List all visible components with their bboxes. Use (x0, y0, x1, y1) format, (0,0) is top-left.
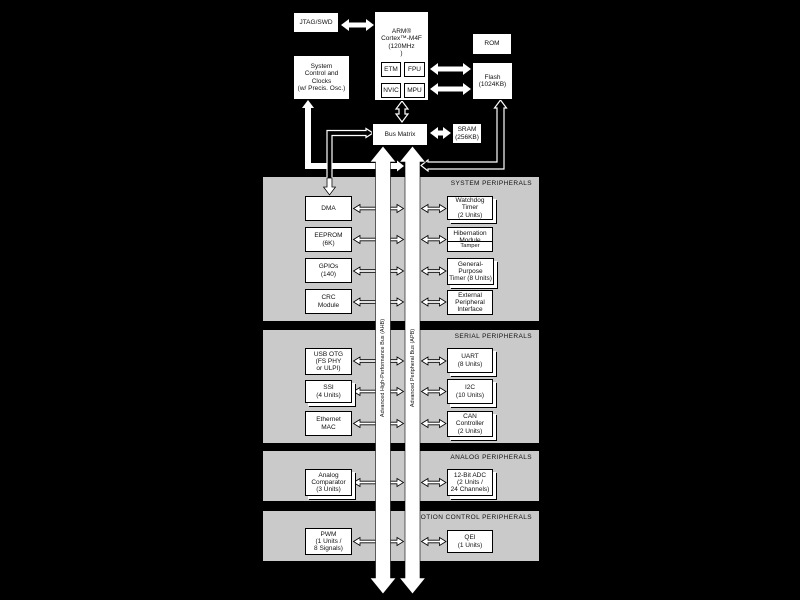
right-peripheral-arrow-4 (422, 357, 447, 365)
pwm-label: PWM (1 Units / 8 Signals) (314, 531, 343, 553)
gpio-label: GPIOs (140) (319, 263, 339, 278)
usb-box: USB OTG (FS PHY or ULPI) (305, 348, 352, 375)
gpio-box: GPIOs (140) (305, 258, 352, 283)
eeprom-label: EEPROM (6K) (314, 232, 342, 247)
bus-matrix-box: Bus Matrix (372, 123, 428, 146)
right-peripheral-arrow-5 (422, 388, 447, 396)
adc-label: 12-Bit ADC (2 Units / 24 Channels) (451, 472, 490, 494)
crc-label: CRC Module (318, 294, 339, 309)
busmatrix-sram-arrow (430, 127, 451, 139)
comparator-label: Analog Comparator (3 Units) (311, 472, 345, 494)
qei-box: QEI (1 Units) (447, 530, 493, 553)
mpu-box: MPU (404, 83, 425, 98)
watchdog-box: Watchdog Timer (2 Units) (447, 196, 493, 220)
nvic-label: NVIC (383, 87, 399, 94)
cpu-box: ARM® Cortex™-M4F (120MHz ) ETM FPU NVIC … (374, 11, 429, 101)
ethernet-label: Ethernet MAC (316, 416, 341, 431)
mpu-label: MPU (407, 87, 421, 94)
bus-matrix-label: Bus Matrix (385, 131, 416, 138)
tamper-label: Tamper (460, 244, 479, 250)
dma-box: DMA (305, 196, 352, 221)
right-peripheral-arrow-8 (422, 538, 447, 546)
qei-label: QEI (1 Units) (458, 534, 483, 549)
right-peripheral-arrow-7 (422, 479, 447, 487)
uart-label: UART (8 Units) (458, 353, 483, 368)
tamper-box: Tamper (447, 241, 493, 252)
can-label: CAN Controller (2 Units) (456, 413, 484, 435)
cpu-label: ARM® Cortex™-M4F (120MHz ) (375, 28, 428, 58)
epi-box: External Peripheral Interface (447, 290, 493, 315)
right-peripheral-arrow-3 (422, 298, 447, 306)
ssi-box: SSI (4 Units) (305, 380, 352, 403)
cpu-busmatrix-arrow (396, 101, 408, 122)
etm-label: ETM (384, 66, 398, 73)
right-peripheral-arrow-0 (422, 205, 447, 213)
i2c-box: I2C (10 Units) (447, 379, 493, 404)
etm-box: ETM (381, 62, 401, 77)
cpu-flash-arrow-upper (430, 63, 471, 75)
flash-label: Flash (1024KB) (479, 74, 506, 89)
fpu-box: FPU (404, 62, 425, 77)
adc-box: 12-Bit ADC (2 Units / 24 Channels) (447, 469, 493, 496)
gptimer-box: General- Purpose Timer (8 Units) (447, 258, 494, 285)
right-peripheral-arrow-6 (422, 420, 447, 428)
ethernet-box: Ethernet MAC (305, 411, 352, 436)
watchdog-label: Watchdog Timer (2 Units) (455, 197, 484, 219)
rom-label: ROM (484, 40, 499, 47)
pwm-box: PWM (1 Units / 8 Signals) (305, 528, 352, 555)
dma-label: DMA (321, 205, 335, 212)
jtag-label: JTAG/SWD (299, 19, 332, 26)
can-box: CAN Controller (2 Units) (447, 411, 493, 437)
epi-label: External Peripheral Interface (455, 292, 485, 314)
peripheral-bus-arrows (354, 205, 447, 546)
ahb-bus-label: Advanced High-Performance Bus (AHB) (379, 293, 387, 443)
hibernation-box: Hibernation Module Tamper (447, 227, 493, 252)
right-peripheral-arrow-2 (422, 267, 447, 275)
usb-label: USB OTG (FS PHY or ULPI) (314, 351, 343, 373)
rom-box: ROM (472, 33, 512, 55)
eeprom-box: EEPROM (6K) (305, 227, 352, 252)
uart-box: UART (8 Units) (447, 348, 493, 373)
nvic-box: NVIC (381, 83, 401, 98)
crc-box: CRC Module (305, 289, 352, 314)
cpu-flash-arrow-lower (430, 83, 471, 95)
flash-box: Flash (1024KB) (472, 62, 513, 100)
comparator-box: Analog Comparator (3 Units) (305, 469, 352, 496)
i2c-label: I2C (10 Units) (456, 384, 484, 399)
gptimer-label: General- Purpose Timer (8 Units) (449, 261, 492, 283)
jtag-box: JTAG/SWD (293, 12, 339, 33)
system-control-label: System Control and Clocks (w/ Precis. Os… (298, 63, 346, 92)
ssi-label: SSI (4 Units) (316, 384, 341, 399)
sram-label: SRAM (256KB) (455, 126, 479, 141)
system-control-box: System Control and Clocks (w/ Precis. Os… (293, 55, 350, 100)
right-peripheral-arrow-1 (422, 236, 447, 244)
fpu-label: FPU (408, 66, 421, 73)
apb-bus-label: Advanced Peripheral Bus (APB) (409, 293, 417, 443)
sram-box: SRAM (256KB) (452, 123, 482, 144)
jtag-cpu-arrow (341, 19, 374, 31)
mcu-block-diagram: SYSTEM PERIPHERALS SERIAL PERIPHERALS AN… (0, 0, 800, 600)
